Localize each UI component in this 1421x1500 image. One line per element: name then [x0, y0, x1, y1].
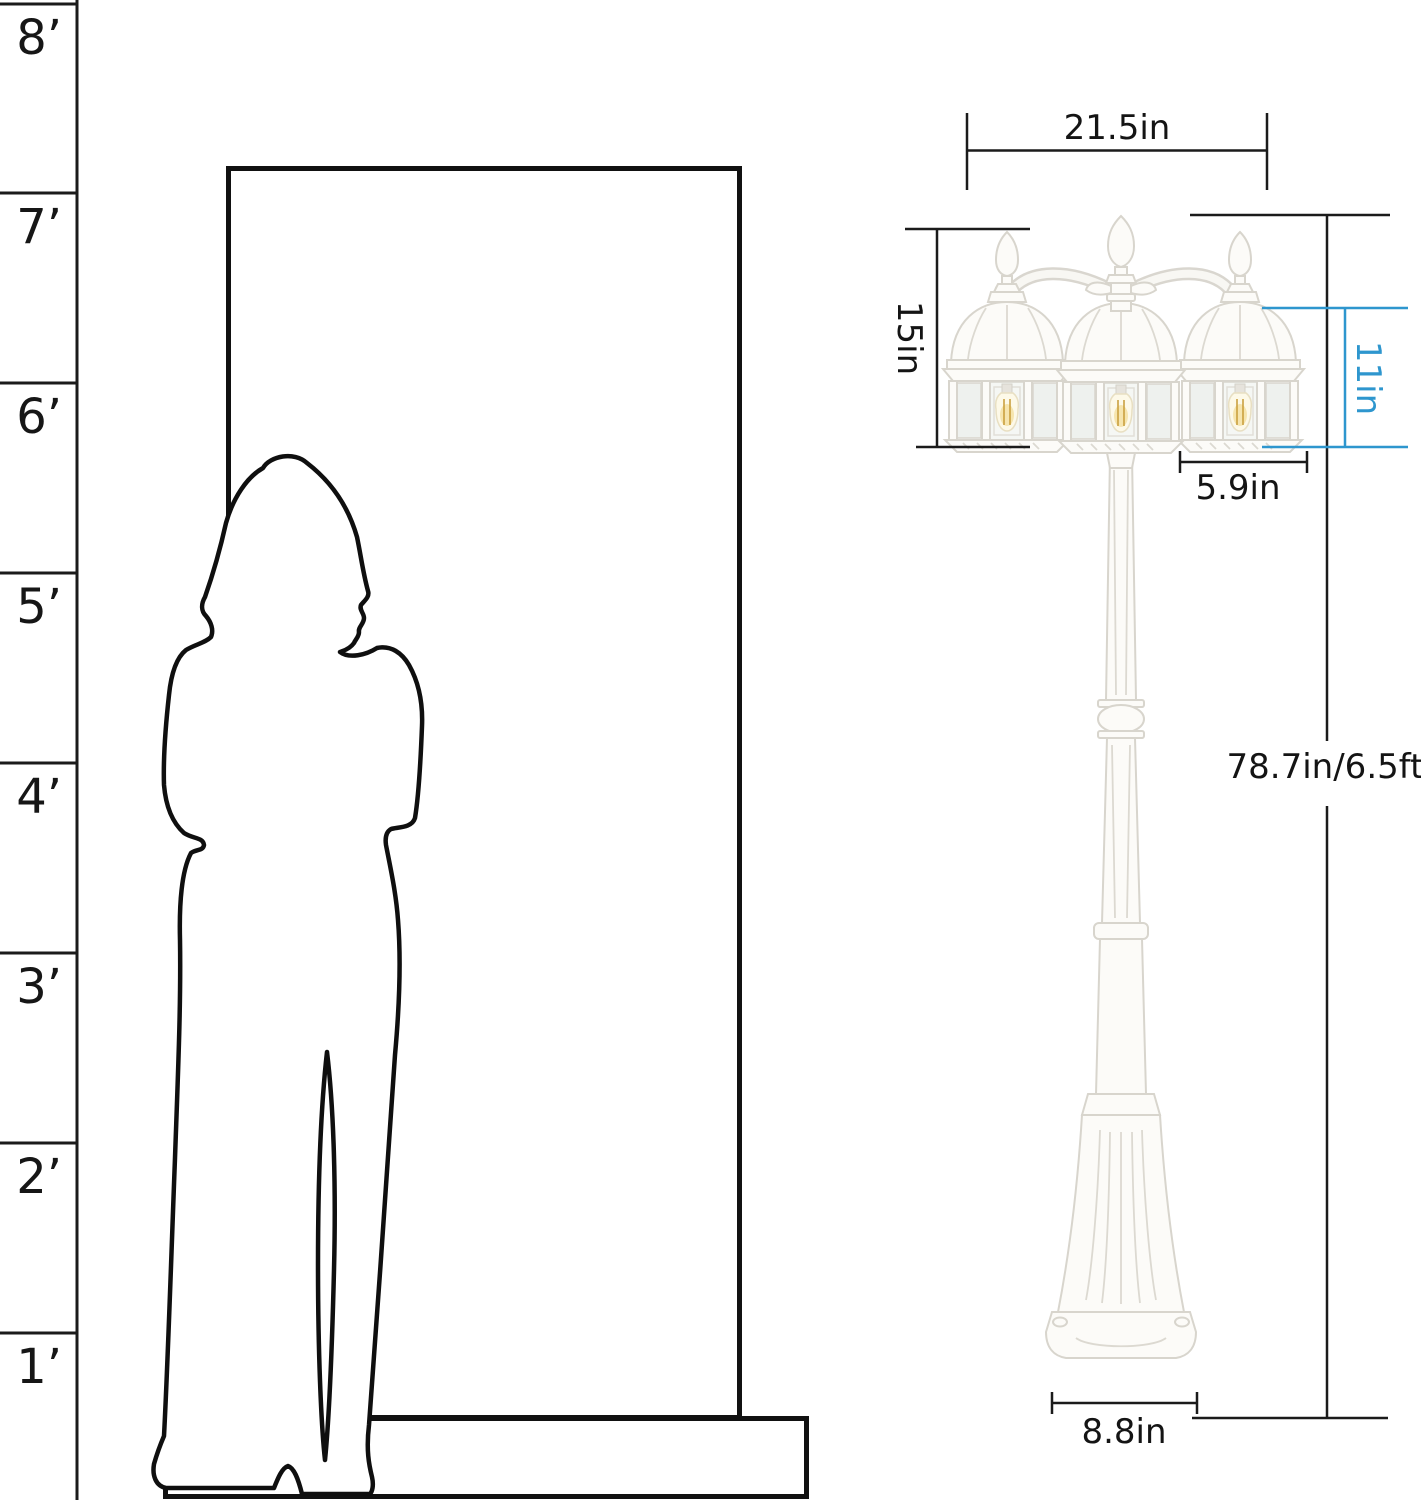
ruler-label-5ft: 5’ [16, 579, 62, 635]
product-dimension-diagram: 8’ 7’ 6’ 5’ 4’ 3’ 2’ 1’ [0, 0, 1421, 1500]
center-lantern [1057, 303, 1185, 453]
pole-joint-collar [1094, 923, 1148, 939]
lantern-height-label: 11in [1348, 341, 1388, 415]
assembly-height-label: 15in [889, 301, 929, 375]
crown-assembly [1086, 216, 1156, 311]
ruler-label-3ft: 3’ [16, 959, 62, 1015]
base-bolt-hole-right [1175, 1318, 1189, 1327]
ruler-label-2ft: 2’ [16, 1149, 62, 1205]
central-finial [1108, 216, 1134, 267]
dimension-head-width: 21.5in [967, 108, 1267, 190]
ruler-label-7ft: 7’ [16, 199, 62, 255]
left-lantern-finial [988, 232, 1026, 302]
height-ruler: 8’ 7’ 6’ 5’ 4’ 3’ 2’ 1’ [0, 0, 77, 1500]
right-lantern-finial [1221, 232, 1259, 302]
diagram-svg: 8’ 7’ 6’ 5’ 4’ 3’ 2’ 1’ [0, 0, 1421, 1500]
pole-lower-section [1096, 939, 1146, 1094]
crown-scroll-left [1086, 283, 1111, 295]
base-bolt-hole-left [1053, 1318, 1067, 1327]
base-flare-collar [1082, 1094, 1160, 1115]
right-lantern [1176, 302, 1304, 452]
crown-scroll-right [1131, 283, 1156, 295]
head-width-label: 21.5in [1064, 108, 1171, 148]
lantern-width-label: 5.9in [1195, 468, 1280, 508]
total-height-label: 78.7in/6.5ft [1227, 747, 1421, 787]
pole-ring-lower [1098, 731, 1144, 738]
pole-ball-ornament [1098, 705, 1144, 733]
dimension-single-lantern-width: 5.9in [1180, 451, 1307, 508]
crown-neck [1115, 267, 1127, 275]
ruler-label-1ft: 1’ [16, 1339, 62, 1395]
crown-collar [1106, 275, 1136, 283]
pole-middle-section [1102, 738, 1140, 923]
center-lantern-pedestal [1107, 453, 1135, 468]
ruler-label-6ft: 6’ [16, 389, 62, 445]
ruler-label-4ft: 4’ [16, 769, 62, 825]
lamp-post [943, 216, 1304, 1358]
pole-upper-section [1106, 455, 1136, 700]
ruler-label-8ft: 8’ [16, 10, 62, 66]
base-width-label: 8.8in [1081, 1412, 1166, 1452]
base-foot-plate [1046, 1312, 1196, 1358]
crown-column-ring [1107, 294, 1135, 301]
left-lantern [943, 302, 1071, 452]
lamp-base [1046, 1094, 1196, 1358]
dimension-base-width: 8.8in [1052, 1392, 1197, 1452]
lamp-pole [1094, 455, 1148, 1094]
